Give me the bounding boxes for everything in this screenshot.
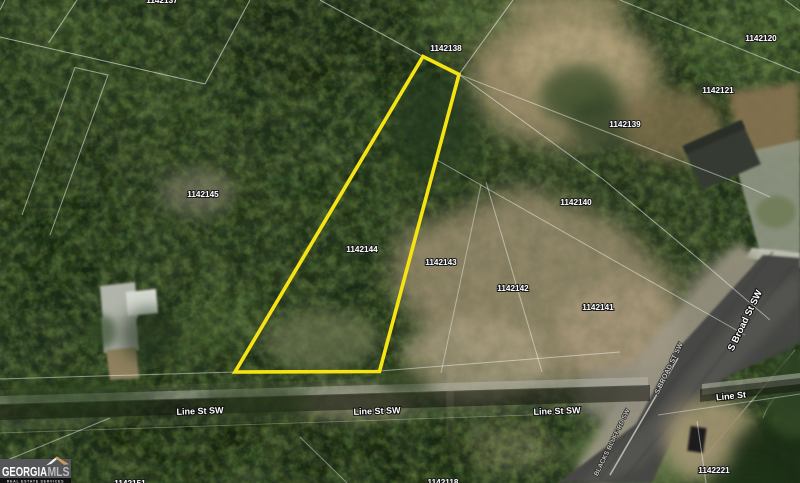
svg-text:1142118: 1142118 [428, 478, 459, 483]
svg-text:1142138: 1142138 [430, 44, 462, 53]
svg-text:1142120: 1142120 [745, 34, 777, 43]
svg-text:GEORGIA: GEORGIA [2, 464, 47, 479]
svg-text:1142221: 1142221 [698, 466, 730, 475]
svg-text:1142151: 1142151 [114, 479, 146, 483]
svg-text:1142141: 1142141 [582, 303, 614, 312]
svg-text:1142142: 1142142 [497, 284, 529, 293]
svg-text:1142143: 1142143 [425, 258, 457, 267]
svg-text:Line St SW: Line St SW [533, 405, 581, 417]
svg-text:REAL ESTATE SERVICES: REAL ESTATE SERVICES [7, 479, 64, 483]
svg-text:1142140: 1142140 [560, 198, 592, 207]
svg-text:1142137: 1142137 [146, 0, 178, 5]
svg-text:Line St SW: Line St SW [176, 405, 224, 417]
svg-text:1142121: 1142121 [702, 86, 734, 95]
svg-text:1142144: 1142144 [346, 245, 378, 254]
svg-text:Line St SW: Line St SW [353, 405, 401, 417]
svg-text:MLS: MLS [48, 464, 70, 479]
svg-text:1142139: 1142139 [609, 120, 641, 129]
svg-text:1142145: 1142145 [187, 190, 219, 199]
